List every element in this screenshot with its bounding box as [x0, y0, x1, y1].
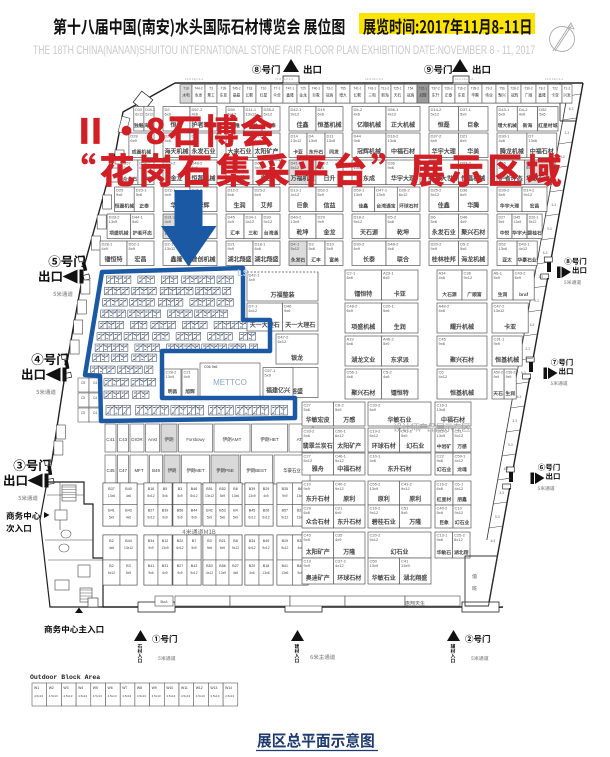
svg-text:4x6: 4x6: [249, 571, 254, 575]
svg-text:4x12: 4x12: [439, 374, 448, 379]
svg-text:中福石材: 中福石材: [441, 416, 465, 424]
svg-text:5toA: 5toA: [160, 600, 168, 604]
svg-text:W7: W7: [122, 686, 127, 690]
svg-text:9x12: 9x12: [455, 510, 464, 515]
svg-text:巨象: 巨象: [312, 93, 320, 98]
svg-text:旭辉: 旭辉: [184, 388, 195, 395]
svg-text:9x9: 9x9: [162, 516, 167, 520]
svg-text:B7: B7: [192, 539, 196, 543]
svg-text:5x9: 5x9: [265, 373, 272, 378]
svg-text:13x6: 13x6: [528, 138, 537, 143]
svg-text:5x9: 5x9: [383, 341, 390, 346]
svg-text:恒磊机械: 恒磊机械: [114, 203, 134, 210]
svg-text:恒基机械: 恒基机械: [450, 389, 474, 397]
svg-text:B27: B27: [177, 564, 183, 568]
svg-text:景工: 景工: [207, 93, 215, 98]
svg-text:红星材城: 红星材城: [538, 122, 557, 129]
svg-text:4x12: 4x12: [388, 112, 397, 117]
svg-text:13x6: 13x6: [232, 494, 239, 498]
svg-text:T44-2: T44-2: [194, 87, 203, 91]
svg-text:龙魂: 龙魂: [457, 466, 467, 473]
svg-text:6x12: 6x12: [248, 546, 255, 550]
svg-text:B2: B2: [109, 539, 113, 543]
svg-text:4.5x13: 4.5x13: [166, 694, 175, 698]
svg-text:3-3: 3-3: [538, 275, 543, 279]
svg-text:三和: 三和: [368, 93, 376, 98]
svg-text:9x12: 9x12: [281, 546, 288, 550]
svg-text:6x12: 6x12: [262, 516, 269, 520]
svg-text:镭恒特: 镭恒特: [354, 290, 372, 298]
svg-text:卡亚: 卡亚: [551, 93, 559, 98]
svg-text:B5: B5: [163, 487, 167, 491]
svg-text:5x12: 5x12: [431, 112, 440, 117]
svg-text:T9-2: T9-2: [486, 87, 493, 91]
svg-text:聚兴: 聚兴: [498, 93, 506, 98]
svg-text:9x6: 9x6: [437, 537, 444, 542]
svg-text:B34: B34: [249, 539, 255, 543]
svg-text:华宇大: 华宇大: [512, 230, 527, 237]
svg-text:B57: B57: [282, 509, 288, 513]
svg-text:4x9: 4x9: [249, 277, 256, 282]
svg-text:天石: 天石: [394, 94, 402, 98]
svg-text:T22: T22: [552, 87, 558, 91]
svg-text:6x6: 6x6: [255, 246, 262, 251]
svg-text:广顺: 广顺: [525, 93, 533, 98]
svg-text:幻石业: 幻石业: [437, 466, 452, 473]
svg-text:华敏石业: 华敏石业: [372, 574, 396, 582]
svg-text:4x12: 4x12: [206, 571, 213, 575]
svg-text:B51: B51: [206, 487, 212, 491]
svg-text:太阳矿产: 太阳矿产: [305, 548, 330, 556]
svg-text:6x9: 6x9: [460, 138, 467, 143]
svg-text:4.5x13: 4.5x13: [93, 694, 102, 698]
svg-text:12-6 13-2 9-4: 12-6 13-2 9-4: [185, 77, 203, 81]
svg-text:B22: B22: [177, 539, 183, 543]
svg-text:9-3: 9-3: [495, 515, 500, 519]
svg-text:幻石业: 幻石业: [390, 548, 408, 556]
svg-text:永发石业: 永发石业: [190, 148, 215, 156]
svg-text:T16-2: T16-2: [457, 87, 466, 91]
svg-text:东求派: 东求派: [391, 356, 410, 364]
svg-text:B46: B46: [191, 487, 197, 491]
svg-text:福建亿兴: 福建亿兴: [265, 387, 290, 395]
svg-text:5x9: 5x9: [318, 192, 325, 197]
svg-text:环球石材: 环球石材: [372, 442, 396, 450]
svg-text:成磊机械: 成磊机械: [132, 149, 151, 156]
svg-text:Forsbowy: Forsbowy: [186, 437, 205, 442]
svg-text:6-3: 6-3: [504, 467, 509, 471]
svg-text:东升石: 东升石: [309, 149, 324, 156]
svg-text:聚兴石材: 聚兴石材: [449, 356, 474, 364]
svg-text:4.5x13: 4.5x13: [152, 694, 161, 698]
svg-text:B29: B29: [249, 564, 255, 568]
svg-text:B8: B8: [233, 539, 237, 543]
svg-text:W10: W10: [166, 686, 173, 690]
svg-text:13x12: 13x12: [124, 546, 133, 550]
svg-text:巨象: 巨象: [439, 519, 449, 526]
svg-text:9x12: 9x12: [335, 458, 344, 463]
svg-text:桂林桂邦: 桂林桂邦: [431, 256, 456, 264]
svg-text:恒磊: 恒磊: [438, 121, 450, 129]
svg-text:6x9: 6x9: [165, 112, 172, 117]
svg-text:中悦: 中悦: [500, 230, 510, 237]
svg-text:6x9: 6x9: [220, 546, 225, 550]
svg-text:6x9: 6x9: [162, 571, 167, 575]
svg-text:5x9: 5x9: [335, 407, 342, 412]
svg-text:13x9: 13x9: [514, 220, 522, 224]
svg-text:9-3: 9-3: [508, 443, 513, 447]
svg-text:增大: 增大: [339, 93, 347, 98]
svg-text:镭恒特: 镭恒特: [391, 389, 409, 397]
svg-text:9x6: 9x6: [116, 192, 123, 197]
svg-text:联合: 联合: [397, 256, 410, 264]
svg-text:13x9: 13x9: [401, 563, 410, 568]
svg-text:6x12: 6x12: [108, 571, 115, 575]
svg-text:B3: B3: [207, 539, 211, 543]
svg-text:生润: 生润: [233, 202, 245, 210]
svg-text:T54: T54: [408, 87, 414, 91]
svg-text:5x9: 5x9: [220, 494, 225, 498]
svg-text:B41: B41: [108, 509, 114, 513]
svg-text:B39: B39: [162, 509, 168, 513]
svg-text:B3: B3: [126, 564, 130, 568]
svg-text:冠辉: 冠辉: [511, 93, 519, 98]
svg-text:B12: B12: [162, 539, 168, 543]
svg-text:6x9: 6x9: [383, 275, 390, 280]
svg-text:兴发: 兴发: [563, 93, 571, 98]
svg-text:台湾通宝: 台湾通宝: [376, 203, 395, 210]
svg-text:9x12: 9x12: [370, 537, 379, 542]
svg-text:护者环态: 护者环态: [133, 230, 152, 237]
svg-text:湖北翔盛: 湖北翔盛: [227, 256, 251, 264]
svg-text:9x12: 9x12: [529, 220, 537, 224]
svg-text:乾坤: 乾坤: [296, 229, 308, 237]
svg-text:9x9: 9x9: [304, 563, 311, 568]
svg-text:T7-1: T7-1: [274, 87, 281, 91]
svg-text:三和: 三和: [248, 230, 258, 237]
svg-text:13x9: 13x9: [370, 563, 379, 568]
svg-text:9x9: 9x9: [304, 537, 311, 542]
svg-text:4.5x13: 4.5x13: [137, 694, 146, 698]
svg-text:B56: B56: [177, 509, 183, 513]
svg-text:6x6: 6x6: [304, 510, 311, 515]
svg-text:天石源: 天石源: [360, 229, 378, 237]
svg-text:W5: W5: [93, 686, 98, 690]
svg-text:B56: B56: [219, 564, 225, 568]
svg-text:4x6: 4x6: [192, 112, 199, 117]
svg-text:万感: 万感: [456, 443, 467, 450]
svg-text:5x9: 5x9: [327, 246, 334, 251]
svg-text:6x12: 6x12: [335, 433, 344, 438]
svg-text:W12: W12: [196, 686, 203, 690]
svg-text:9x9: 9x9: [304, 486, 311, 491]
svg-text:9x12: 9x12: [401, 486, 410, 491]
svg-text:12-6 13-2 9-4: 12-6 13-2 9-4: [455, 77, 473, 81]
svg-text:9x9: 9x9: [318, 219, 325, 224]
svg-text:4.5x13: 4.5x13: [78, 694, 87, 698]
svg-text:6x6: 6x6: [347, 341, 354, 346]
svg-text:T26-2: T26-2: [444, 87, 453, 91]
svg-text:长泰: 长泰: [363, 256, 376, 264]
svg-text:3-3: 3-3: [551, 203, 556, 207]
svg-text:9x12: 9x12: [281, 516, 288, 520]
svg-text:B21: B21: [219, 539, 225, 543]
svg-text:B44: B44: [191, 509, 197, 513]
svg-text:13x9: 13x9: [437, 433, 446, 438]
svg-text:众合石材: 众合石材: [306, 518, 330, 526]
svg-text:B52: B52: [219, 487, 225, 491]
svg-text:卡亚: 卡亚: [504, 323, 516, 331]
svg-text:4x6: 4x6: [499, 138, 506, 143]
svg-text:环球石材: 环球石材: [337, 574, 361, 582]
svg-text:华豪石业: 华豪石业: [517, 257, 536, 264]
svg-text:METTCO: METTCO: [213, 378, 247, 387]
svg-text:5x9: 5x9: [207, 516, 212, 520]
svg-text:碧桂石: 碧桂石: [526, 230, 542, 237]
svg-text:6x12: 6x12: [304, 458, 313, 463]
svg-text:4.5x13: 4.5x13: [108, 694, 117, 698]
svg-text:6x12: 6x12: [399, 192, 408, 197]
svg-text:13x12: 13x12: [165, 246, 177, 251]
svg-text:13x9: 13x9: [219, 571, 226, 575]
svg-text:LS: LS: [237, 268, 249, 278]
svg-text:生润: 生润: [505, 390, 515, 397]
svg-text:5x9: 5x9: [109, 516, 114, 520]
svg-text:12-6 13-2 9-4: 12-6 13-2 9-4: [275, 77, 293, 81]
svg-text:T1-2: T1-2: [564, 87, 571, 91]
svg-text:4x9: 4x9: [263, 494, 268, 498]
svg-text:6x12: 6x12: [370, 433, 379, 438]
svg-text:6x12: 6x12: [454, 537, 463, 542]
svg-text:4.5x13: 4.5x13: [34, 694, 43, 698]
svg-text:佳鑫: 佳鑫: [358, 203, 368, 210]
svg-text:9x6: 9x6: [284, 308, 291, 313]
svg-text:T8-2: T8-2: [539, 87, 546, 91]
svg-text:原利: 原利: [409, 495, 421, 503]
svg-text:6x9: 6x9: [499, 192, 506, 197]
svg-text:5x12: 5x12: [145, 113, 153, 117]
svg-text:13x6: 13x6: [499, 246, 508, 251]
svg-text:东亚: 东亚: [220, 93, 228, 98]
svg-text:5x6: 5x6: [431, 219, 438, 224]
svg-text:原利: 原利: [378, 495, 390, 503]
svg-text:9-3: 9-3: [521, 371, 526, 375]
svg-text:湖北翔: 湖北翔: [454, 549, 469, 556]
svg-text:4.5x13: 4.5x13: [210, 694, 219, 698]
svg-text:奥迪矿产: 奥迪矿产: [306, 574, 330, 582]
svg-text:B43: B43: [125, 509, 131, 513]
svg-text:翡翠兰炭石: 翡翠兰炭石: [303, 442, 333, 450]
svg-text:9x12: 9x12: [264, 219, 273, 224]
svg-text:6-3: 6-3: [543, 251, 548, 255]
svg-text:B29: B29: [263, 487, 269, 491]
svg-text:W11: W11: [181, 686, 188, 690]
svg-text:4x6: 4x6: [519, 112, 526, 117]
svg-text:明昌: 明昌: [168, 388, 178, 395]
svg-text:5x12: 5x12: [264, 112, 273, 117]
svg-text:B27: B27: [148, 509, 154, 513]
svg-text:中岩矿: 中岩矿: [437, 443, 452, 450]
svg-text:卡亚: 卡亚: [394, 290, 406, 298]
svg-text:B34: B34: [148, 539, 154, 543]
svg-text:W13: W13: [210, 686, 217, 690]
svg-text:5x9: 5x9: [126, 571, 131, 575]
svg-text:耀升机械: 耀升机械: [449, 323, 474, 331]
svg-text:4x9: 4x9: [102, 246, 109, 251]
svg-text:4x9: 4x9: [165, 192, 172, 197]
svg-text:金龙: 金龙: [299, 93, 307, 98]
svg-text:T45-2: T45-2: [232, 87, 241, 91]
svg-text:T56: T56: [499, 87, 505, 91]
svg-text:汇丰: 汇丰: [230, 230, 240, 237]
svg-text:W2: W2: [49, 686, 54, 690]
svg-text:5x6: 5x6: [539, 112, 546, 117]
svg-text:B43: B43: [191, 564, 197, 568]
svg-text:华美: 华美: [467, 148, 480, 156]
svg-text:B8: B8: [233, 487, 237, 491]
svg-text:湖北翔盛: 湖北翔盛: [254, 256, 278, 264]
svg-text:T39: T39: [221, 87, 227, 91]
svg-text:T18: T18: [247, 87, 253, 91]
svg-text:5x9: 5x9: [233, 516, 238, 520]
svg-text:5x9: 5x9: [191, 516, 196, 520]
svg-text:同发: 同发: [329, 149, 339, 156]
svg-text:正大机械: 正大机械: [391, 121, 415, 129]
svg-text:宏昌: 宏昌: [530, 203, 540, 210]
svg-text:3-3: 3-3: [512, 419, 517, 423]
svg-text:4x6: 4x6: [126, 494, 131, 498]
svg-text:6x9: 6x9: [499, 112, 506, 117]
svg-text:13x9: 13x9: [376, 192, 385, 197]
svg-text:B45: B45: [249, 509, 255, 513]
svg-text:3-3: 3-3: [564, 131, 569, 135]
svg-text:T3-2: T3-2: [326, 87, 333, 91]
svg-text:4x12: 4x12: [455, 458, 464, 463]
svg-text:6-3: 6-3: [491, 539, 496, 543]
svg-text:braf: braf: [519, 292, 528, 298]
svg-text:4x9: 4x9: [460, 219, 467, 224]
svg-text:5x12: 5x12: [291, 165, 300, 170]
svg-text:中福石材: 中福石材: [391, 148, 415, 156]
svg-text:13x9: 13x9: [161, 546, 168, 550]
svg-text:9-3: 9-3: [560, 155, 565, 159]
svg-text:C41: C41: [106, 437, 115, 442]
svg-text:永发: 永发: [195, 93, 203, 98]
svg-text:T26-1: T26-1: [419, 87, 428, 91]
svg-text:MFT: MFT: [134, 468, 143, 473]
svg-text:9x9: 9x9: [282, 494, 287, 498]
svg-text:5x6: 5x6: [136, 192, 143, 197]
svg-text:东升石材: 东升石材: [337, 518, 361, 526]
svg-text:13x9: 13x9: [291, 219, 300, 224]
svg-text:W4: W4: [78, 686, 83, 690]
svg-text:4x12: 4x12: [335, 563, 344, 568]
svg-text:9x12: 9x12: [262, 546, 269, 550]
svg-text:4x6: 4x6: [109, 546, 114, 550]
svg-text:4x9: 4x9: [165, 219, 172, 224]
svg-text:腾龙机械: 腾龙机械: [499, 148, 524, 156]
svg-text:T11-2: T11-2: [381, 87, 389, 91]
svg-text:宏昌: 宏昌: [134, 256, 146, 264]
svg-text:5x9: 5x9: [460, 112, 467, 117]
svg-text:13x9: 13x9: [166, 374, 175, 379]
svg-text:幻影: 幻影: [354, 93, 362, 98]
svg-text:5x9: 5x9: [401, 433, 408, 438]
svg-text:6x12: 6x12: [176, 546, 183, 550]
svg-text:4x12: 4x12: [519, 246, 528, 251]
svg-text:6x12: 6x12: [248, 516, 255, 520]
svg-text:6x9: 6x9: [460, 192, 467, 197]
svg-text:W9: W9: [152, 686, 157, 690]
svg-text:晶磊: 晶磊: [233, 93, 241, 98]
svg-text:5x6: 5x6: [309, 246, 316, 251]
svg-text:巨象: 巨象: [296, 202, 308, 210]
svg-text:B2: B2: [109, 564, 113, 568]
svg-text:9x12: 9x12: [335, 486, 344, 491]
svg-text:原利: 原利: [343, 495, 355, 503]
svg-text:海龙机械: 海龙机械: [461, 256, 485, 264]
svg-text:W3: W3: [63, 686, 68, 690]
svg-text:新海: 新海: [381, 93, 389, 98]
svg-text:红星材: 红星材: [437, 496, 452, 503]
svg-text:6x12: 6x12: [135, 113, 143, 117]
svg-text:6x6: 6x6: [347, 275, 354, 280]
svg-text:冠辉: 冠辉: [419, 93, 427, 98]
svg-text:6-3: 6-3: [530, 323, 535, 327]
svg-text:金龙: 金龙: [322, 229, 335, 237]
svg-text:银龙: 银龙: [291, 354, 303, 362]
svg-text:6x12: 6x12: [190, 494, 197, 498]
svg-text:华腾: 华腾: [471, 93, 479, 98]
svg-text:B18: B18: [263, 564, 269, 568]
svg-text:4x6: 4x6: [126, 516, 131, 520]
svg-text:天石: 天石: [493, 390, 503, 397]
svg-text:6x6: 6x6: [228, 192, 235, 197]
svg-text:永发石业: 永发石业: [431, 229, 456, 237]
svg-text:9-3: 9-3: [534, 299, 539, 303]
svg-text:太阳矿产: 太阳矿产: [336, 442, 361, 450]
svg-text:卡亚: 卡亚: [293, 149, 303, 156]
svg-text:6x9: 6x9: [370, 407, 377, 412]
svg-text:13x9: 13x9: [248, 494, 255, 498]
svg-text:雅舟: 雅舟: [311, 465, 324, 473]
svg-text:冠高: 冠高: [326, 93, 334, 98]
svg-text:13x9: 13x9: [354, 192, 363, 197]
svg-text:4x12: 4x12: [291, 192, 300, 197]
svg-text:4x9: 4x9: [335, 537, 342, 542]
svg-text:9x9: 9x9: [494, 375, 500, 379]
svg-text:聚兴石材: 聚兴石材: [350, 389, 375, 397]
svg-text:正泰: 正泰: [445, 93, 453, 98]
svg-text:Anst: Anst: [148, 437, 158, 442]
svg-text:鑫隆: 鑫隆: [169, 256, 183, 264]
svg-text:A50-2: A50-2: [494, 371, 504, 375]
svg-text:D27: D27: [499, 216, 506, 220]
svg-text:华腾: 华腾: [467, 202, 480, 210]
svg-text:C43: C43: [119, 437, 128, 442]
svg-text:华豪石业: 华豪石业: [283, 467, 301, 474]
svg-text:5x6: 5x6: [220, 516, 225, 520]
svg-text:艾邦: 艾邦: [260, 202, 272, 210]
svg-text:9x9: 9x9: [148, 546, 153, 550]
svg-text:伊朗: 伊朗: [164, 436, 174, 443]
svg-text:4x12: 4x12: [455, 486, 464, 491]
svg-text:东升石材: 东升石材: [387, 465, 411, 473]
svg-text:9x6: 9x6: [207, 546, 212, 550]
svg-text:红星: 红星: [260, 93, 268, 98]
svg-text:B41: B41: [148, 564, 154, 568]
svg-text:6x6: 6x6: [318, 112, 325, 117]
